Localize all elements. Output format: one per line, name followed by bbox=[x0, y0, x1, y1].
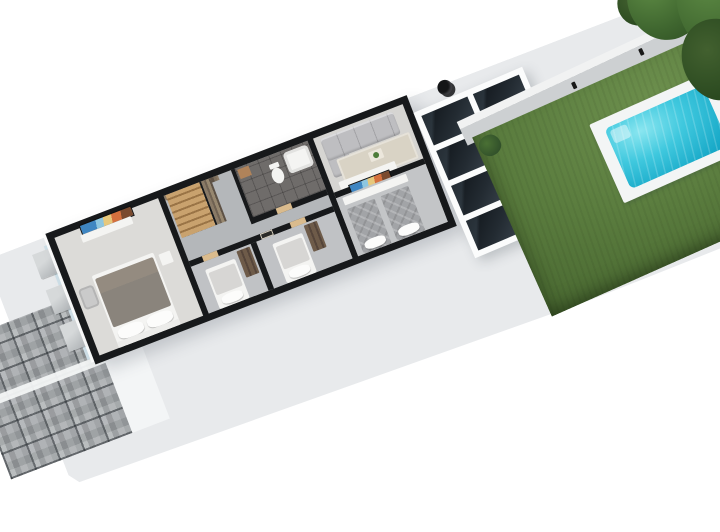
master-bed bbox=[92, 252, 181, 348]
toilet bbox=[269, 166, 286, 185]
wall-light-icon bbox=[571, 81, 578, 89]
plant-icon bbox=[372, 151, 380, 159]
bathtub bbox=[282, 144, 314, 174]
shrub bbox=[476, 131, 505, 159]
pool-water bbox=[604, 85, 720, 189]
nightstand bbox=[158, 250, 174, 266]
bed-pillow bbox=[363, 234, 387, 251]
scene-canvas bbox=[0, 0, 720, 532]
pool-steps bbox=[609, 124, 631, 144]
bath-vanity bbox=[237, 166, 252, 180]
wall-light-icon bbox=[638, 48, 645, 56]
bed-pillow bbox=[397, 221, 421, 238]
rotated-site-plan bbox=[0, 0, 720, 532]
